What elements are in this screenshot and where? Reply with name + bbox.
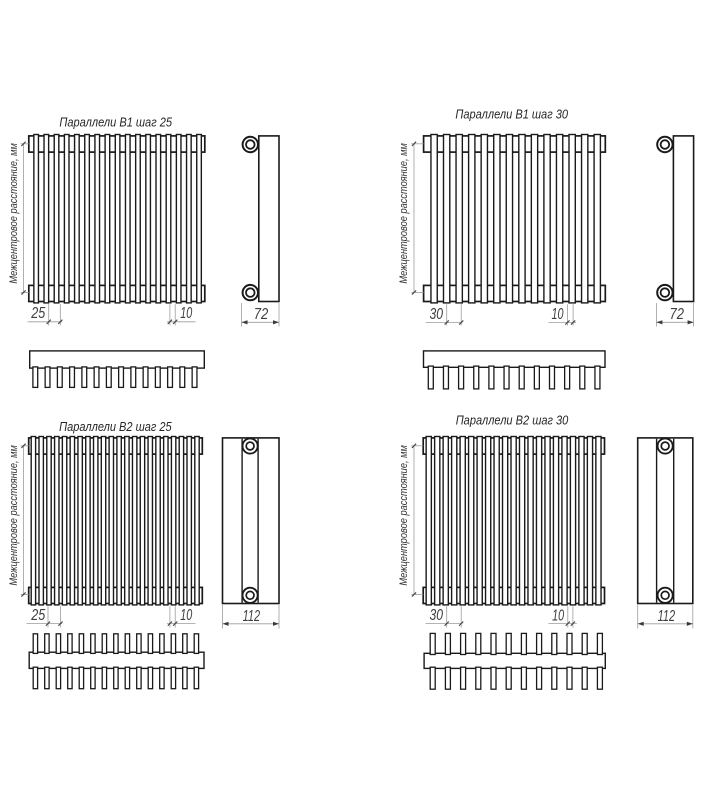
svg-text:10: 10	[180, 305, 192, 322]
svg-text:Параллели В2 шаг 25: Параллели В2 шаг 25	[59, 419, 172, 434]
svg-text:Межцентровое расстояние, мм: Межцентровое расстояние, мм	[398, 445, 410, 586]
svg-text:72: 72	[670, 306, 685, 323]
svg-text:Параллели В1 шаг 25: Параллели В1 шаг 25	[59, 115, 172, 130]
svg-text:Параллели В1 шаг 30: Параллели В1 шаг 30	[455, 107, 568, 122]
svg-text:10: 10	[180, 607, 192, 624]
svg-text:112: 112	[658, 608, 676, 625]
svg-text:Межцентровое расстояние, мм: Межцентровое расстояние, мм	[398, 143, 410, 284]
svg-text:25: 25	[31, 607, 46, 624]
svg-text:10: 10	[552, 608, 564, 625]
svg-text:Параллели В2 шаг 30: Параллели В2 шаг 30	[456, 413, 569, 428]
svg-text:30: 30	[429, 306, 443, 323]
svg-text:30: 30	[429, 607, 443, 624]
svg-text:10: 10	[552, 306, 564, 323]
svg-text:112: 112	[243, 608, 261, 625]
svg-text:72: 72	[254, 306, 269, 323]
svg-text:25: 25	[30, 305, 45, 322]
svg-text:Межцентровое расстояние, мм: Межцентровое расстояние, мм	[8, 143, 20, 284]
svg-text:Межцентровое расстояние, мм: Межцентровое расстояние, мм	[8, 445, 20, 586]
